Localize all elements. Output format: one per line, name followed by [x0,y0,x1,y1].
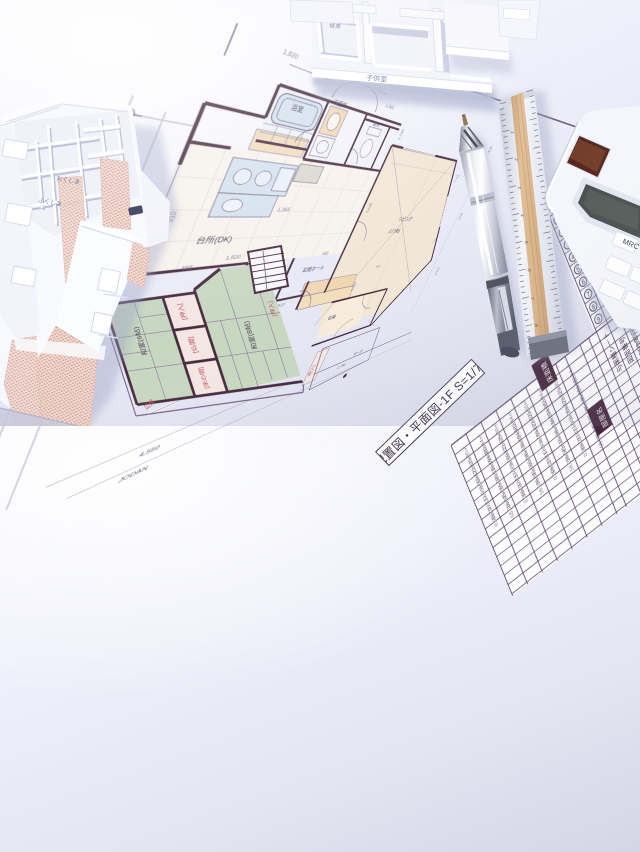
svg-text:JODAN: JODAN [117,464,149,484]
